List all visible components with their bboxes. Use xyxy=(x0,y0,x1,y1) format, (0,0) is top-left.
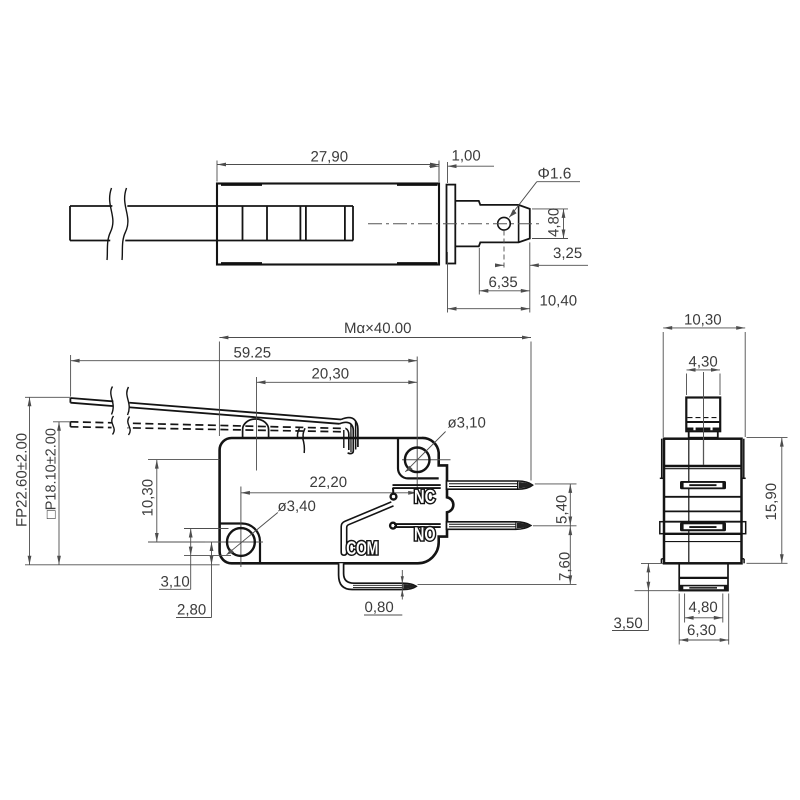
svg-text:Mα×40.00: Mα×40.00 xyxy=(344,320,411,337)
svg-text:6,30: 6,30 xyxy=(687,622,716,639)
svg-text:59.25: 59.25 xyxy=(234,345,272,362)
svg-text:10,30: 10,30 xyxy=(140,479,157,517)
svg-text:FP22.60±2.00: FP22.60±2.00 xyxy=(14,433,31,527)
svg-text:1,00: 1,00 xyxy=(452,148,481,165)
svg-text:Φ1.6: Φ1.6 xyxy=(538,166,572,183)
svg-text:ø3,40: ø3,40 xyxy=(278,498,316,515)
svg-text:3,50: 3,50 xyxy=(614,615,643,632)
svg-text:6,35: 6,35 xyxy=(489,274,518,291)
svg-text:10,30: 10,30 xyxy=(684,312,722,329)
svg-text:ø3,10: ø3,10 xyxy=(448,415,486,432)
svg-text:27,90: 27,90 xyxy=(311,149,349,166)
svg-text:20,30: 20,30 xyxy=(312,366,350,383)
svg-text:2,80: 2,80 xyxy=(177,602,206,619)
svg-text:□P18.10±2.00: □P18.10±2.00 xyxy=(44,428,60,519)
svg-text:22,20: 22,20 xyxy=(310,474,348,491)
svg-text:4,30: 4,30 xyxy=(689,353,718,370)
svg-text:0,80: 0,80 xyxy=(365,599,394,616)
svg-text:7,60: 7,60 xyxy=(557,552,574,581)
svg-text:4,80: 4,80 xyxy=(689,599,718,616)
svg-text:5,40: 5,40 xyxy=(554,495,571,524)
svg-text:15,90: 15,90 xyxy=(763,483,780,521)
svg-text:3,10: 3,10 xyxy=(161,574,190,591)
svg-text:4,80: 4,80 xyxy=(546,208,563,237)
svg-text:3,25: 3,25 xyxy=(553,245,582,262)
svg-text:10,40: 10,40 xyxy=(540,293,578,310)
